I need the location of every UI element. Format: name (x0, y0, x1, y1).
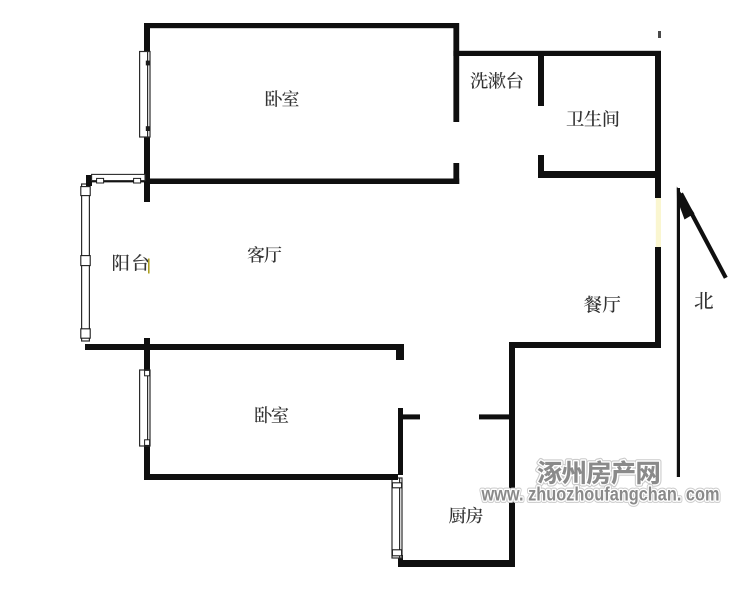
svg-text:www. zhuozhoufangchan. com: www. zhuozhoufangchan. com (481, 485, 720, 506)
